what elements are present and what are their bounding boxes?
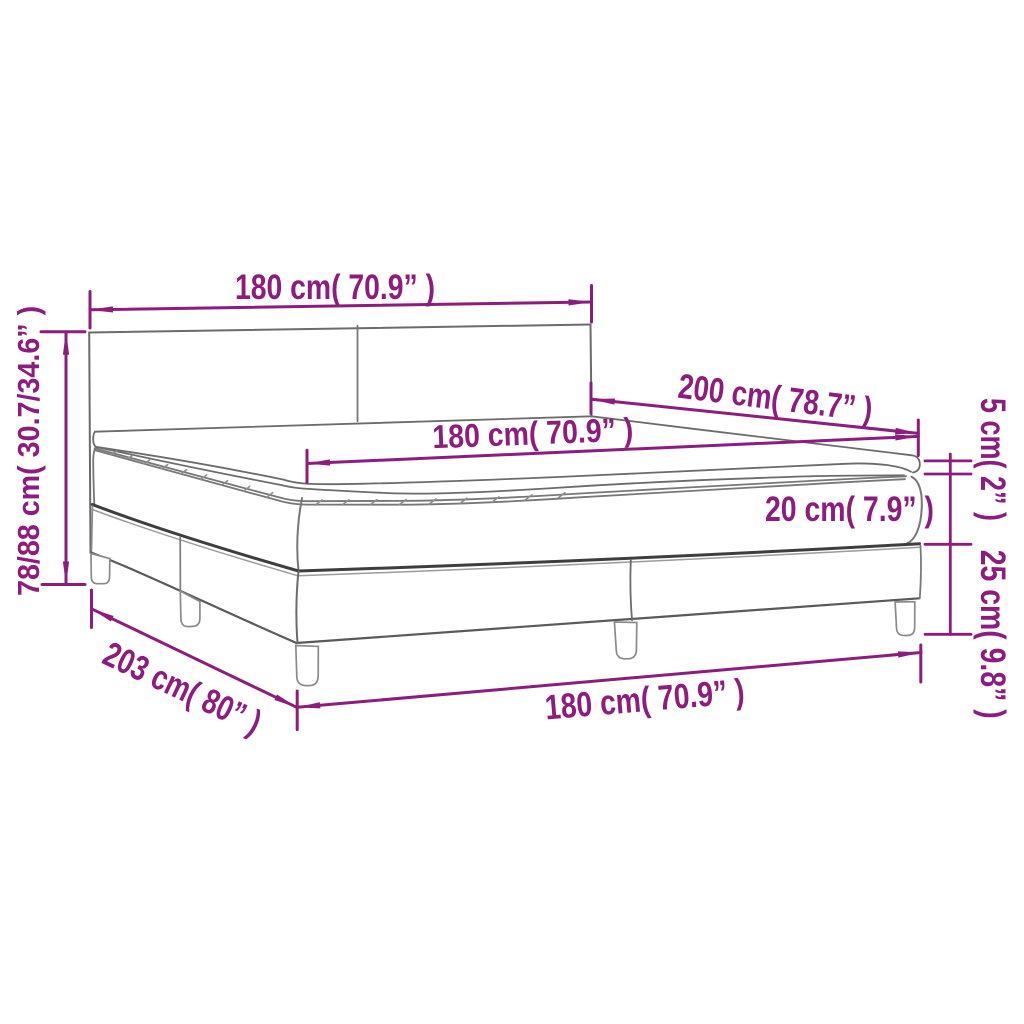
- svg-text:25 cm( 9.8” ): 25 cm( 9.8” ): [973, 550, 1013, 719]
- svg-text:180 cm( 70.9” ): 180 cm( 70.9” ): [235, 267, 435, 307]
- svg-text:180 cm( 70.9” ): 180 cm( 70.9” ): [432, 411, 634, 456]
- svg-text:5 cm( 2” ): 5 cm( 2” ): [973, 398, 1012, 521]
- svg-text:20 cm( 7.9” ): 20 cm( 7.9” ): [765, 489, 934, 529]
- svg-text:78/88 cm( 30.7/34.6” ): 78/88 cm( 30.7/34.6” ): [12, 306, 46, 596]
